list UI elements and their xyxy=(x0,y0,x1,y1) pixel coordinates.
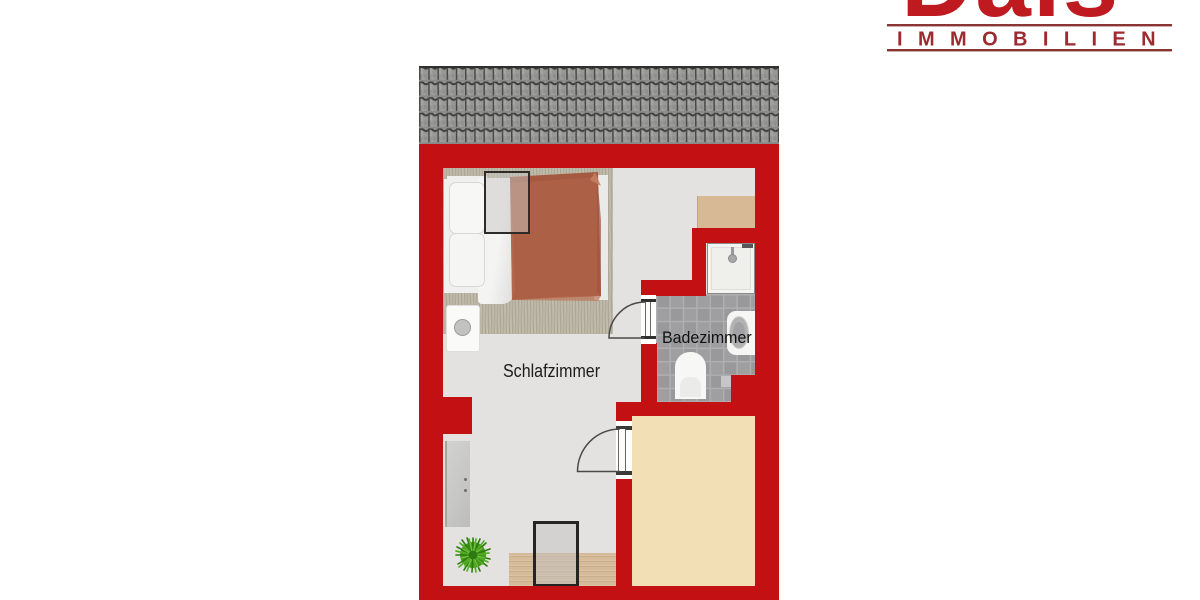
svg-text:IMMOBILIEN: IMMOBILIEN xyxy=(897,29,1171,51)
